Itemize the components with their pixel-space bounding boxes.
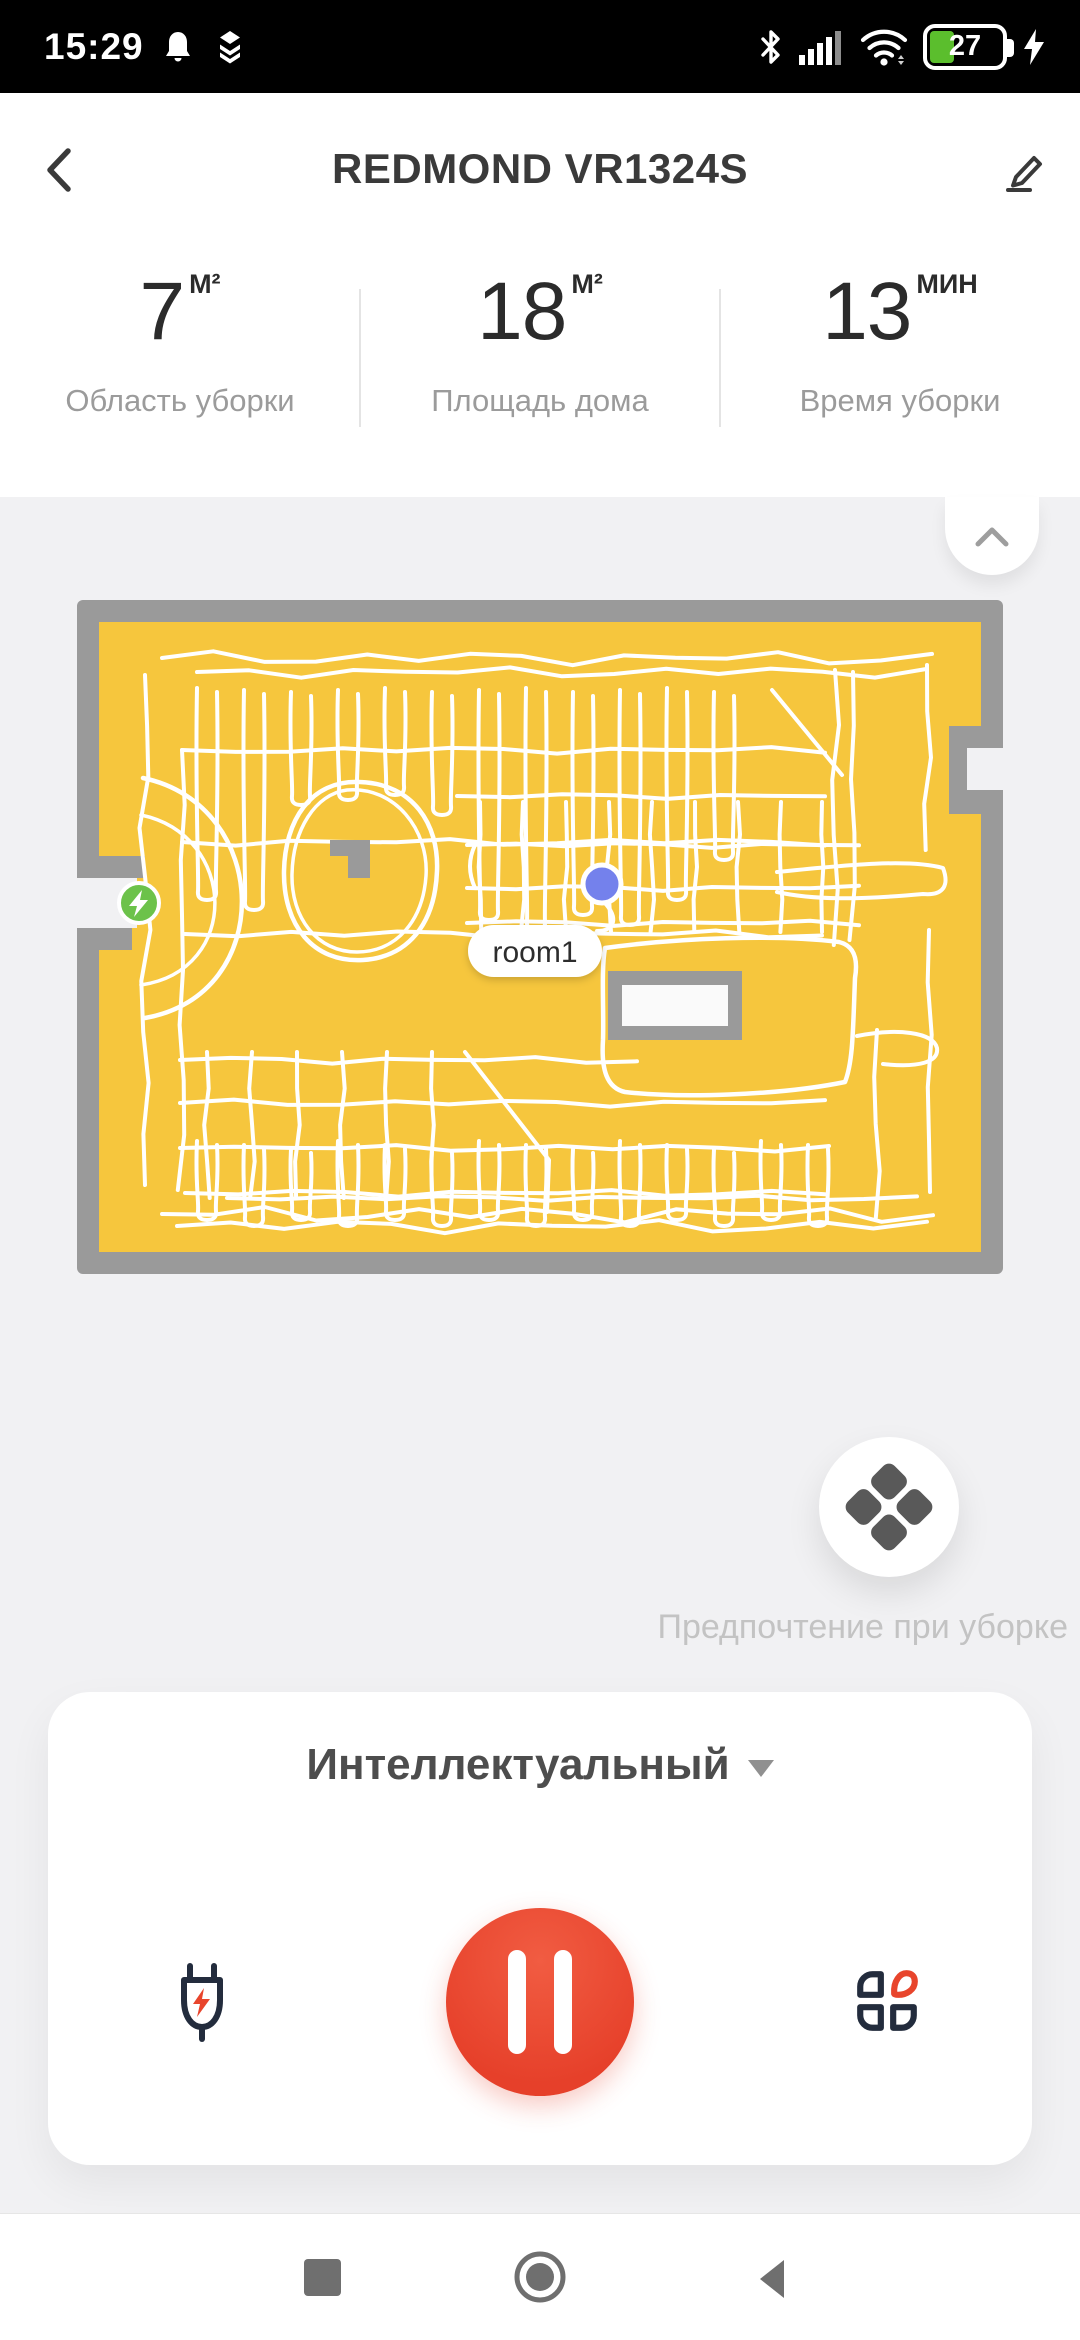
stat-value: 7 — [139, 266, 184, 357]
stat-unit: М² — [189, 269, 220, 300]
nav-row: REDMOND VR1324S — [0, 123, 1080, 215]
pause-icon — [508, 1950, 526, 2054]
pencil-icon — [998, 145, 1046, 195]
cleaning-preference-label: Предпочтение при уборке — [658, 1608, 1068, 1647]
chevron-up-icon — [970, 524, 1014, 548]
layers-icon — [212, 29, 248, 65]
stat-label: Область уборки — [0, 383, 360, 419]
furniture-rect — [608, 971, 742, 1040]
mode-label: Интеллектуальный — [306, 1740, 729, 1790]
mode-selector[interactable]: Интеллектуальный — [48, 1740, 1032, 1790]
stat-value: 18 — [477, 266, 566, 357]
back-triangle-icon — [752, 2256, 790, 2302]
recents-button[interactable] — [304, 2259, 341, 2296]
control-card: Интеллектуальный — [48, 1692, 1032, 2165]
stat-value: 13 — [822, 266, 911, 357]
robot-marker — [583, 865, 621, 903]
cleaning-preference-button[interactable] — [819, 1437, 959, 1577]
caret-down-icon — [748, 1760, 774, 1777]
page-title: REDMOND VR1324S — [120, 123, 960, 215]
status-bar: 15:29 2 — [0, 0, 1080, 93]
rooms-grid-icon — [852, 1966, 922, 2036]
diamonds-icon — [829, 1447, 949, 1567]
bluetooth-icon — [758, 28, 784, 66]
cleaning-map[interactable]: room1 — [77, 600, 1003, 1274]
edit-button[interactable] — [998, 145, 1046, 195]
clock: 15:29 — [44, 26, 144, 68]
room-label[interactable]: room1 — [468, 925, 602, 977]
stats-row: 7М² Область уборки 18М² Площадь дома 13М… — [0, 271, 1080, 419]
svg-text:room1: room1 — [492, 936, 577, 969]
rooms-button[interactable] — [852, 1966, 922, 2036]
home-button[interactable] — [512, 2249, 568, 2305]
bell-icon — [162, 29, 194, 65]
stat-clean-area: 7М² Область уборки — [0, 271, 360, 419]
pause-icon — [554, 1950, 572, 2054]
stat-clean-time: 13МИН Время уборки — [720, 271, 1080, 419]
stat-unit: МИН — [916, 269, 977, 300]
charging-bolt-icon — [1022, 28, 1046, 66]
battery-icon: 27 — [923, 24, 1007, 70]
pause-button[interactable] — [446, 1908, 634, 2096]
stat-label: Площадь дома — [360, 383, 720, 419]
stat-house-area: 18М² Площадь дома — [360, 271, 720, 419]
back-button[interactable] — [38, 145, 82, 195]
map-right-doorway — [967, 748, 1003, 790]
header: REDMOND VR1324S 7М² Область уборки 18М² … — [0, 93, 1080, 497]
stat-label: Время уборки — [720, 383, 1080, 419]
wifi-icon — [860, 27, 908, 67]
plug-charge-icon — [168, 1962, 236, 2042]
dock-marker — [119, 883, 159, 923]
chevron-left-icon — [38, 145, 82, 195]
battery-percent: 27 — [949, 32, 981, 61]
back-nav-button[interactable] — [752, 2256, 790, 2302]
signal-icon — [799, 29, 845, 65]
android-nav-bar — [0, 2213, 1080, 2340]
recharge-button[interactable] — [168, 1962, 236, 2042]
collapse-map-button[interactable] — [945, 497, 1039, 575]
stat-unit: М² — [571, 269, 602, 300]
home-circle-icon — [512, 2249, 568, 2305]
